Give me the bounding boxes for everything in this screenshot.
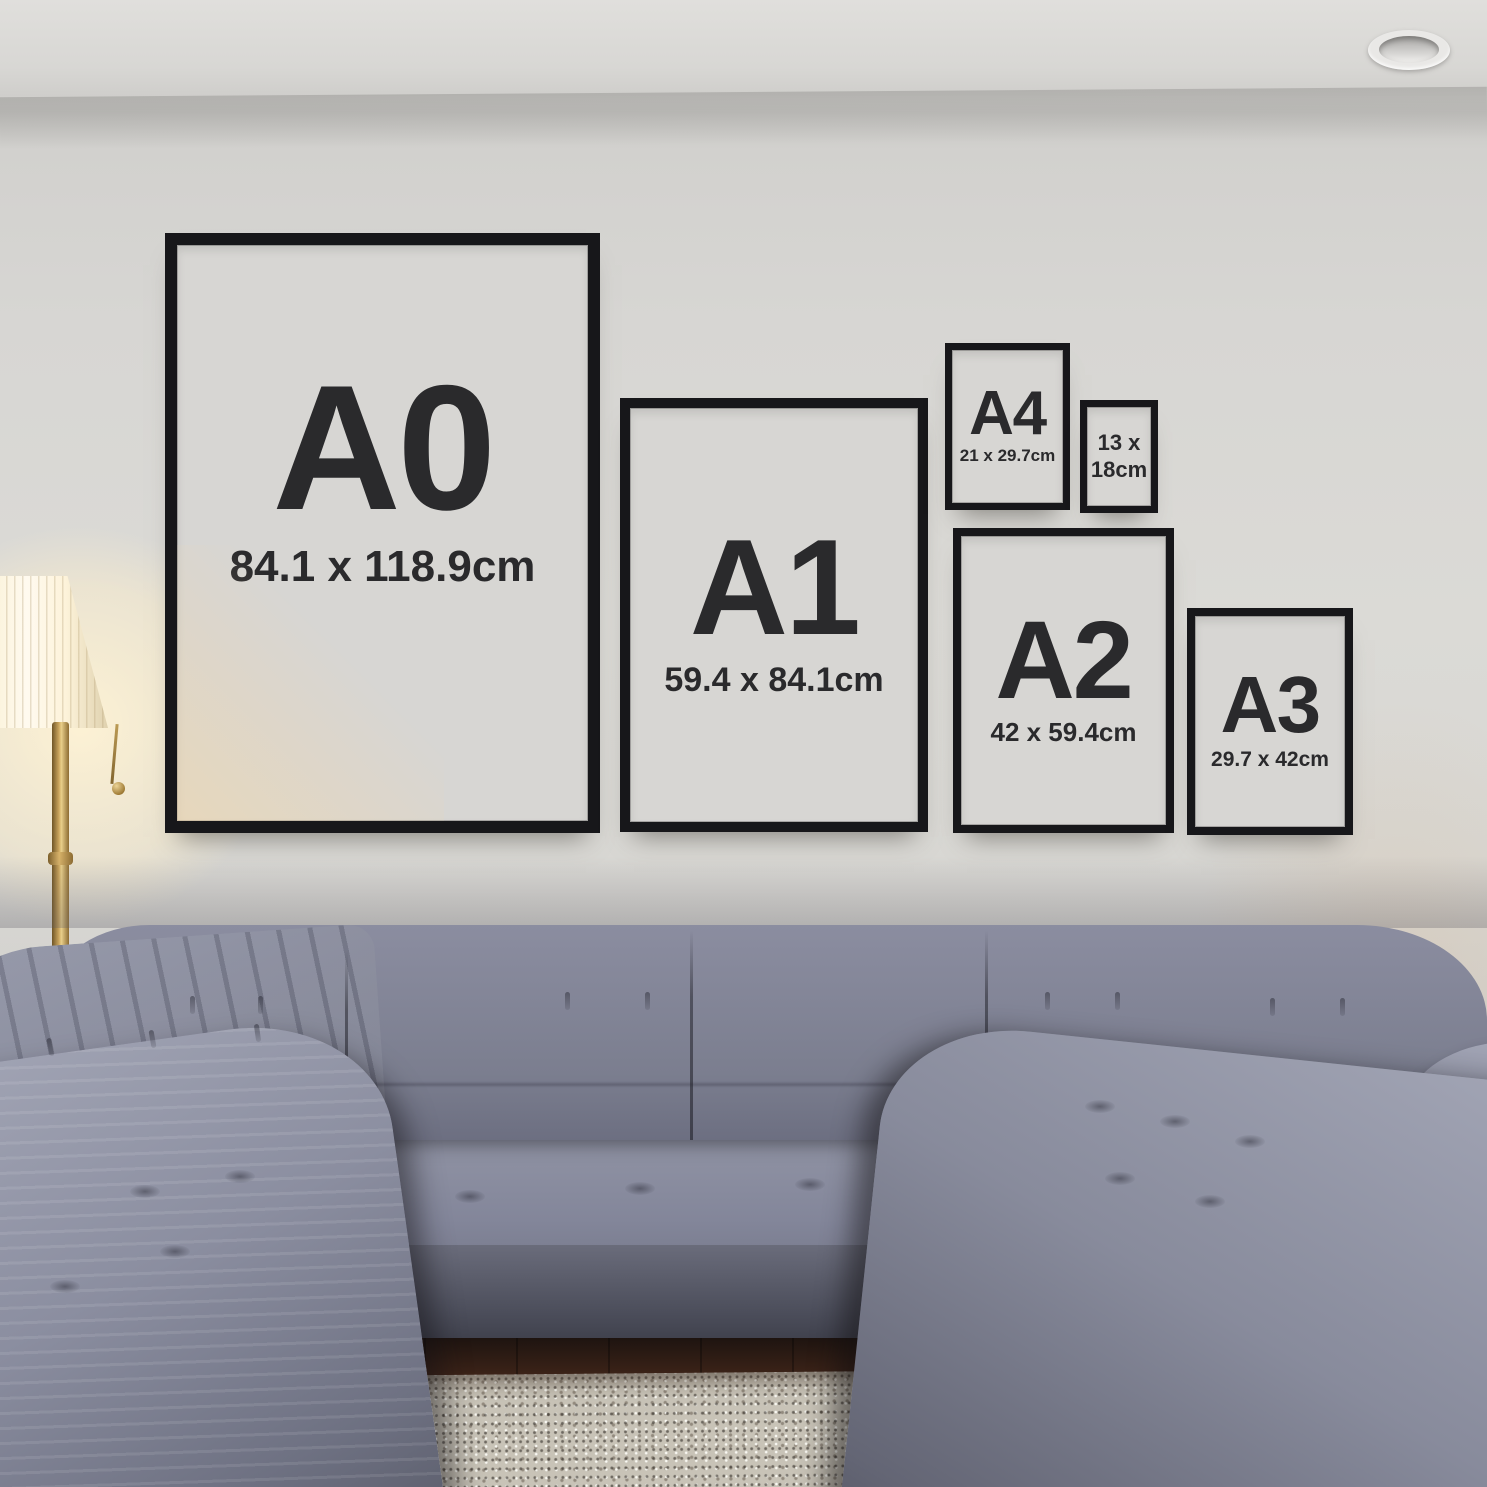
poster-frame-a2: A2 42 x 59.4cm bbox=[953, 528, 1174, 833]
poster-a3-text: A3 29.7 x 42cm bbox=[1211, 673, 1329, 770]
recessed-ceiling-light-bulb bbox=[1379, 36, 1439, 63]
sofa-tuft-dimple bbox=[625, 1182, 655, 1195]
poster-13x18-dimensions-line1: 13 x bbox=[1098, 430, 1141, 455]
poster-frame-13x18: 13 x 18cm bbox=[1080, 400, 1158, 513]
recessed-ceiling-light bbox=[1368, 30, 1450, 70]
poster-a2: A2 42 x 59.4cm bbox=[961, 536, 1166, 825]
poster-a2-dimensions: 42 x 59.4cm bbox=[990, 719, 1136, 745]
sofa-wall-shadow bbox=[0, 856, 1487, 928]
living-room-scene: A0 84.1 x 118.9cm A1 59.4 x 84.1cm A4 21… bbox=[0, 0, 1487, 1487]
sofa-tuft-dimple bbox=[50, 1280, 80, 1293]
sofa-tuft-dimple bbox=[795, 1178, 825, 1191]
sofa-tuft-dash bbox=[1270, 998, 1275, 1016]
poster-a4: A4 21 x 29.7cm bbox=[952, 350, 1063, 503]
poster-frame-a0: A0 84.1 x 118.9cm bbox=[165, 233, 600, 833]
poster-a0-dimensions: 84.1 x 118.9cm bbox=[230, 545, 536, 589]
sofa-tuft-dash bbox=[1045, 992, 1050, 1010]
sofa-tuft-dimple bbox=[160, 1245, 190, 1258]
poster-a4-dimensions: 21 x 29.7cm bbox=[960, 447, 1055, 464]
poster-a1: A1 59.4 x 84.1cm bbox=[630, 408, 918, 822]
sofa-tuft-dash bbox=[645, 992, 650, 1010]
poster-a2-text: A2 42 x 59.4cm bbox=[990, 617, 1136, 745]
poster-frame-a3: A3 29.7 x 42cm bbox=[1187, 608, 1353, 835]
poster-a4-text: A4 21 x 29.7cm bbox=[960, 389, 1055, 464]
poster-13x18: 13 x 18cm bbox=[1087, 407, 1151, 506]
poster-a1-size-label: A1 bbox=[690, 533, 858, 642]
poster-a0: A0 84.1 x 118.9cm bbox=[177, 245, 588, 821]
sofa-tuft-dimple bbox=[1160, 1115, 1190, 1128]
sofa-tuft-dimple bbox=[1085, 1100, 1115, 1113]
poster-a1-text: A1 59.4 x 84.1cm bbox=[664, 533, 883, 698]
sofa-tuft-dimple bbox=[1105, 1172, 1135, 1185]
poster-frame-a4: A4 21 x 29.7cm bbox=[945, 343, 1070, 510]
sofa-tuft-dash bbox=[1115, 992, 1120, 1010]
poster-a4-size-label: A4 bbox=[969, 389, 1046, 439]
poster-a3-dimensions: 29.7 x 42cm bbox=[1211, 749, 1329, 770]
poster-a0-size-label: A0 bbox=[272, 377, 492, 519]
sofa-tuft-dimple bbox=[455, 1190, 485, 1203]
sofa-tuft-dimple bbox=[1235, 1135, 1265, 1148]
poster-13x18-text: 13 x 18cm bbox=[1091, 430, 1147, 483]
sofa-tuft-dash bbox=[1340, 998, 1345, 1016]
sofa-tuft-dash bbox=[258, 996, 263, 1014]
sofa-tuft-dimple bbox=[225, 1170, 255, 1183]
poster-a3: A3 29.7 x 42cm bbox=[1195, 616, 1345, 827]
lamp-pull-chain-ball bbox=[112, 782, 125, 795]
ceiling-wall-shadow bbox=[0, 87, 1487, 149]
poster-a0-text: A0 84.1 x 118.9cm bbox=[230, 377, 536, 589]
sofa-tuft-dash bbox=[190, 996, 195, 1014]
sofa-tuft-dimple bbox=[130, 1185, 160, 1198]
sofa-right-chaise bbox=[829, 1017, 1487, 1487]
sofa-tuft-dash bbox=[565, 992, 570, 1010]
ceiling bbox=[0, 0, 1487, 96]
poster-a3-size-label: A3 bbox=[1220, 673, 1319, 737]
sofa-seam bbox=[690, 930, 693, 1152]
poster-a1-dimensions: 59.4 x 84.1cm bbox=[664, 663, 883, 697]
poster-13x18-dimensions: 13 x 18cm bbox=[1091, 430, 1147, 483]
poster-frame-a1: A1 59.4 x 84.1cm bbox=[620, 398, 928, 832]
poster-13x18-dimensions-line2: 18cm bbox=[1091, 457, 1147, 482]
lamp-stem bbox=[52, 722, 69, 970]
poster-a2-size-label: A2 bbox=[995, 617, 1131, 705]
sofa-tuft-dimple bbox=[1195, 1195, 1225, 1208]
